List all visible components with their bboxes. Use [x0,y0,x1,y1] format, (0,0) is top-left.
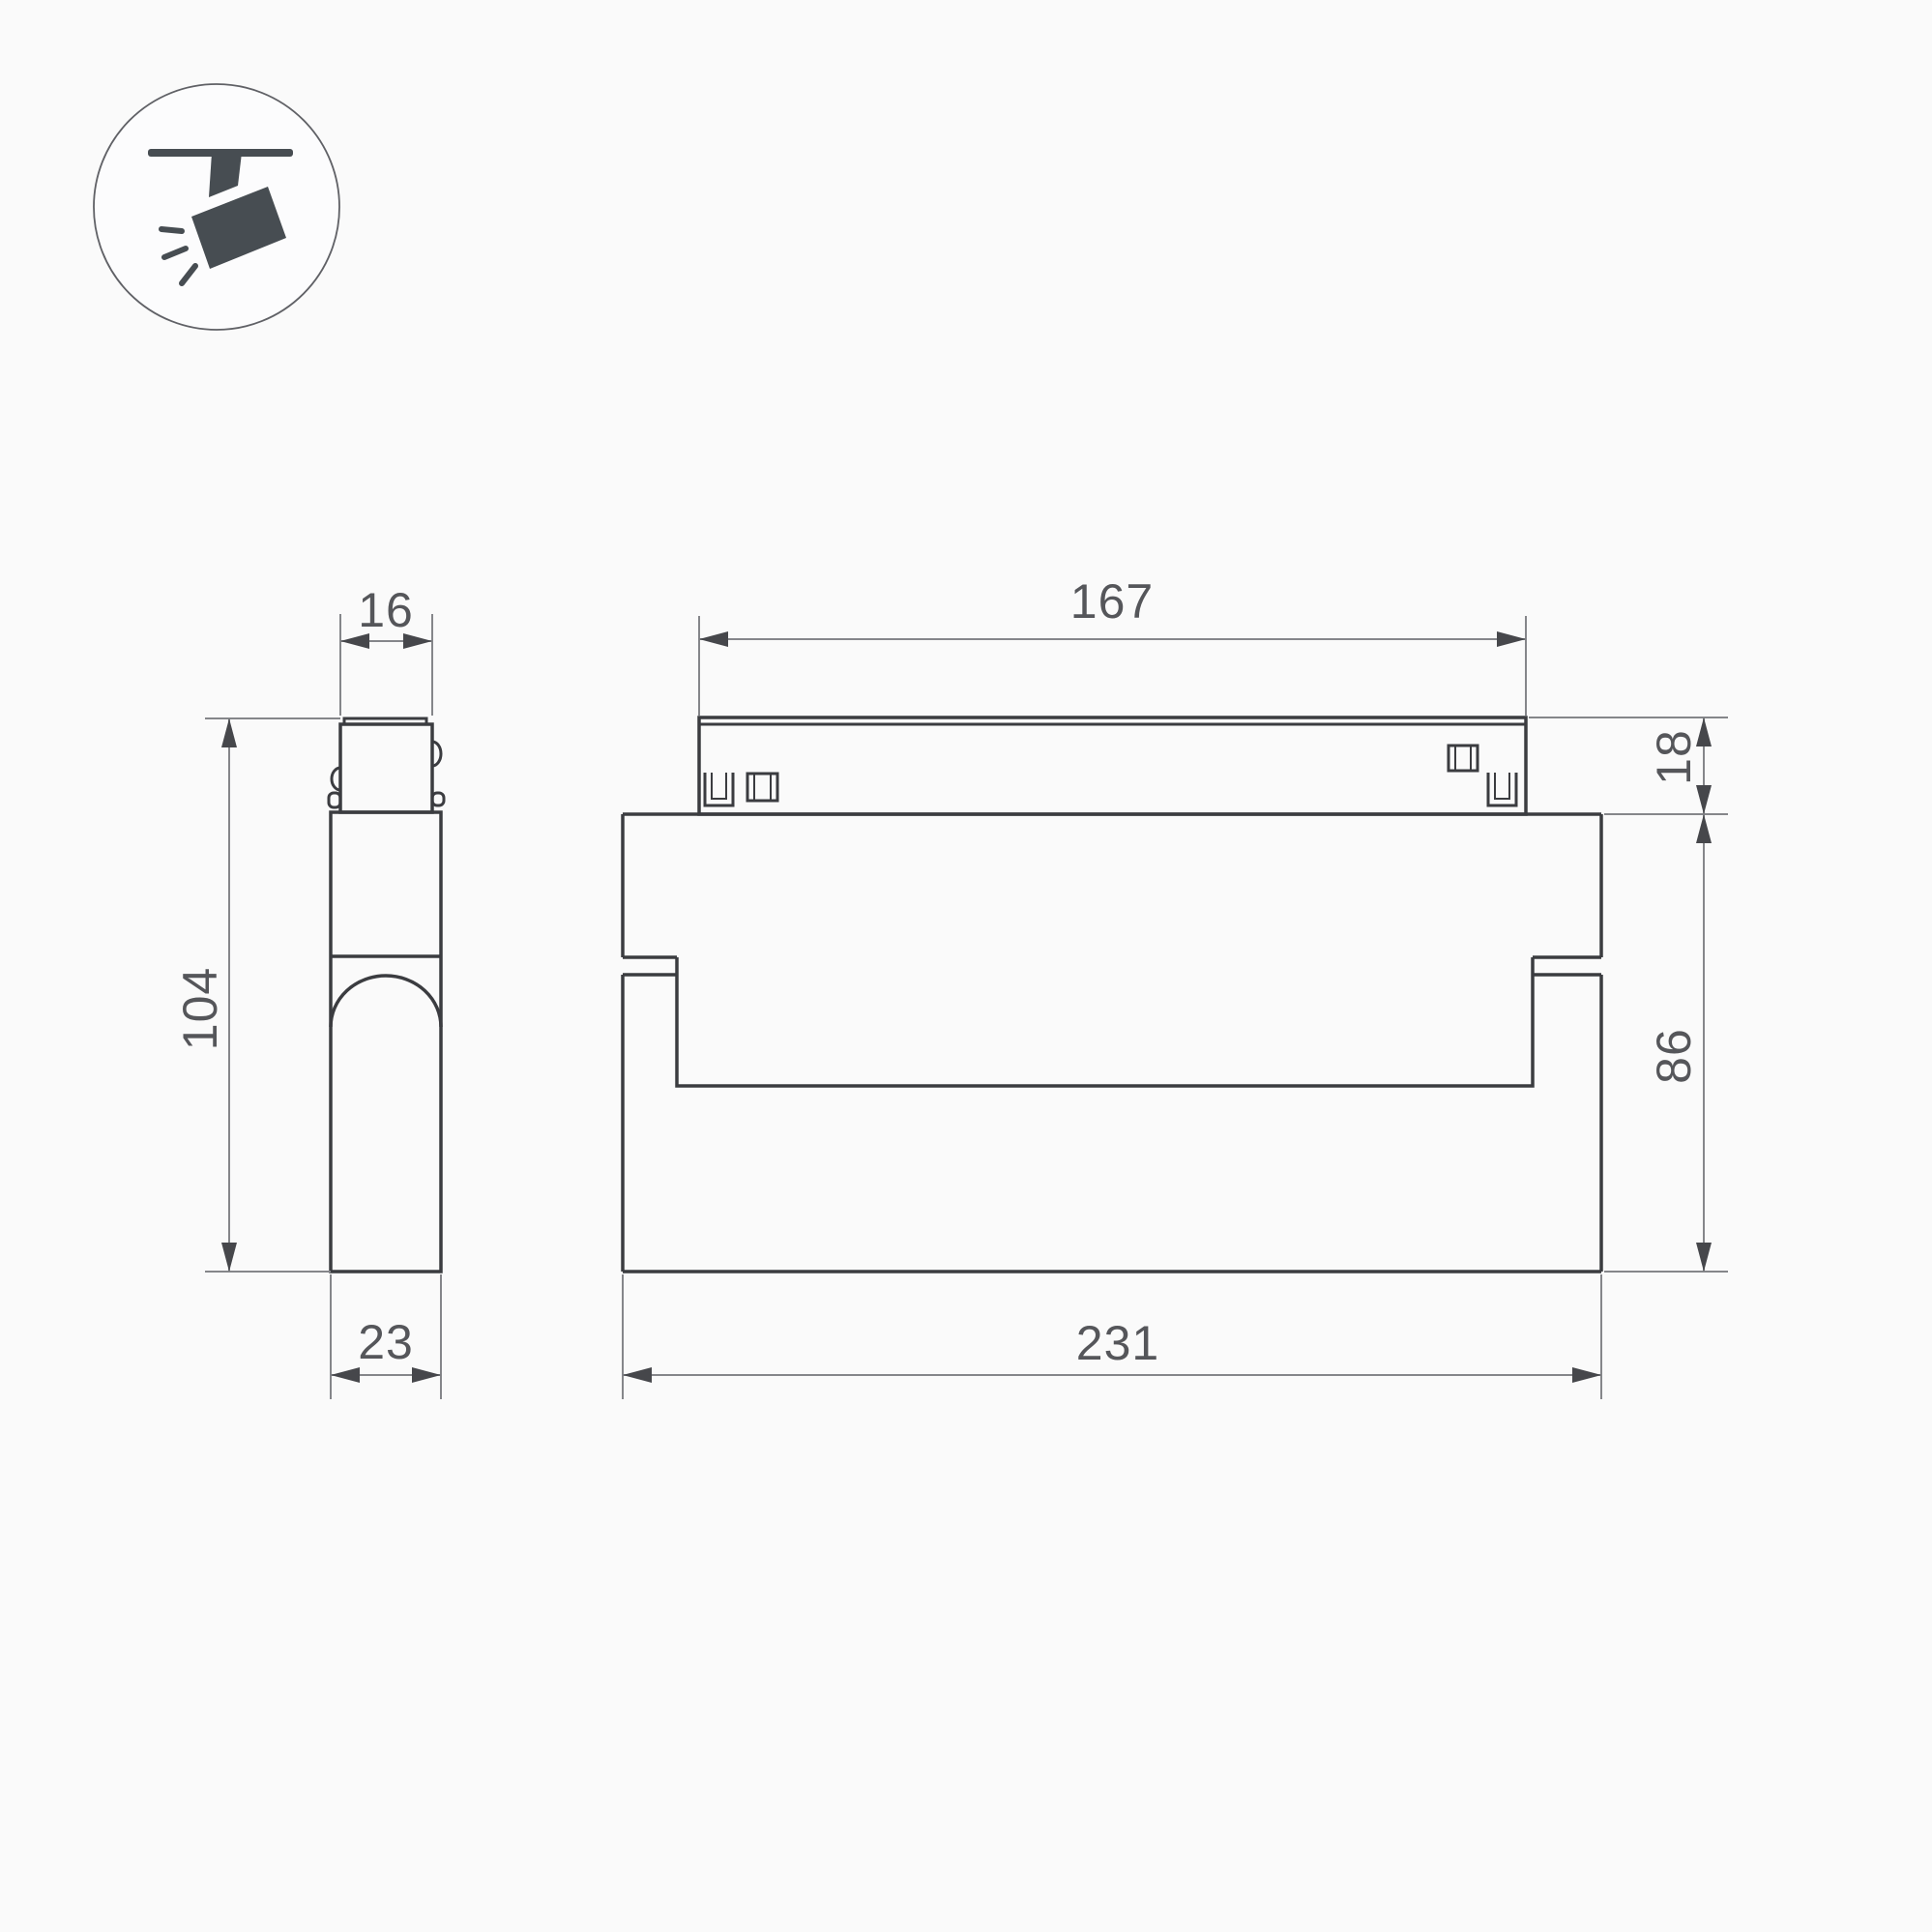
contact-bracket-right-u [1488,773,1516,805]
contact-bracket-left-u [705,773,733,805]
dim-body-height-label: 86 [1647,1028,1701,1084]
arrow-up-icon [221,718,237,747]
dim-body-depth-label: 23 [358,1315,414,1369]
arrow-up-icon [1696,814,1712,843]
clip-tab-left [329,793,340,807]
arrow-left-icon [623,1367,652,1383]
dimension-overall-height: 104 [173,718,340,1272]
front-view [623,717,1601,1272]
dimension-adapter-width: 16 [340,583,432,716]
luminaire-dimension-drawing: 16 104 23 [0,0,1932,1932]
dim-track-length-label: 167 [1070,574,1154,629]
dim-body-length-label: 231 [1076,1316,1159,1370]
arrow-right-icon [1572,1367,1601,1383]
lamp-body-side [331,812,441,1272]
dimension-body-depth: 23 [331,1274,441,1399]
dimension-track-height: 18 [1529,717,1728,814]
dimension-track-length: 167 [699,574,1526,716]
arrow-down-icon [1696,785,1712,814]
arrow-down-icon [1696,1243,1712,1272]
arrow-right-icon [1497,631,1526,647]
dim-adapter-width-label: 16 [358,583,414,637]
contact-block-right [1449,746,1478,771]
arrow-left-icon [699,631,728,647]
dimension-body-height: 86 [1604,814,1728,1272]
technical-drawing-page: 16 104 23 [0,0,1932,1932]
track-adapter [340,724,432,812]
contact-block-left [747,774,777,801]
clip-tab-right [432,793,444,805]
dim-track-height-label: 18 [1647,729,1701,785]
arrow-right-icon [412,1367,441,1383]
tilt-head-seam [623,957,1601,1086]
side-view [329,718,444,1272]
ceiling-track-spotlight-icon [94,84,339,330]
dim-overall-height-label: 104 [173,967,227,1050]
pivot-dome-arc [331,976,441,1027]
arrow-left-icon [331,1367,360,1383]
dimension-body-length: 231 [623,1274,1601,1399]
track-bar [699,717,1526,814]
arrow-down-icon [221,1243,237,1272]
